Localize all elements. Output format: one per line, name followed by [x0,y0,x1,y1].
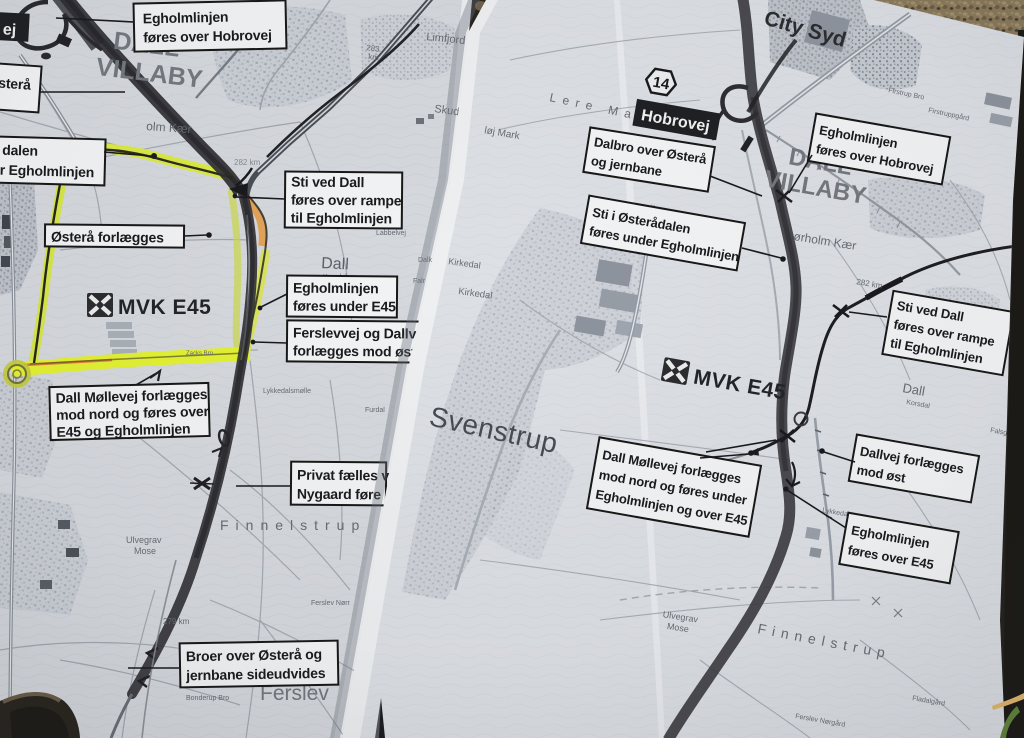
svg-text:282 km: 282 km [234,158,261,167]
svg-text:Privat fælles v: Privat fælles v [297,467,389,484]
svg-text:føres under E45: føres under E45 [293,298,396,315]
svg-text:til Egholmlinjen: til Egholmlinjen [291,210,392,227]
svg-text:forlægges mod øst: forlægges mod øst [293,342,416,359]
svg-text:føres over Hobrovej: føres over Hobrovej [143,27,272,46]
svg-text:MVK E45: MVK E45 [118,296,211,319]
svg-text:r Egholmlinjen: r Egholmlinjen [0,162,94,180]
svg-text:km: km [368,52,380,62]
svg-text:Furdal: Furdal [365,407,385,414]
svg-text:Dall: Dall [321,255,349,273]
svg-text:Bonderup Bro: Bonderup Bro [186,695,229,702]
svg-text:Ferslev Nørr: Ferslev Nørr [311,600,351,607]
svg-text:jernbane sideudvides: jernbane sideudvides [185,665,326,683]
svg-text:279 km: 279 km [163,617,190,626]
svg-text:Ulvegrav: Ulvegrav [126,535,162,545]
svg-text:Zacks Bro: Zacks Bro [186,351,214,357]
svg-text:Broer over Østerå og: Broer over Østerå og [186,646,322,664]
svg-text:Østerå forlægges: Østerå forlægges [51,228,164,245]
svg-text:ej: ej [2,21,16,39]
svg-text:Nygaard føre: Nygaard føre [297,486,382,503]
svg-text:Egholmlinjen: Egholmlinjen [143,9,229,27]
svg-text:Labbelvej: Labbelvej [376,230,406,237]
svg-text:Mose: Mose [134,546,156,556]
svg-text:føres over rampe: føres over rampe [291,192,402,209]
svg-text:dalen: dalen [2,142,38,159]
svg-text:Sti ved Dall: Sti ved Dall [291,174,364,191]
svg-text:Lykkedalsmølle: Lykkedalsmølle [263,388,311,395]
svg-text:Egholmlinjen: Egholmlinjen [293,280,379,297]
svg-text:sterå: sterå [0,75,32,93]
svg-text:Finnelstrup: Finnelstrup [220,517,366,533]
